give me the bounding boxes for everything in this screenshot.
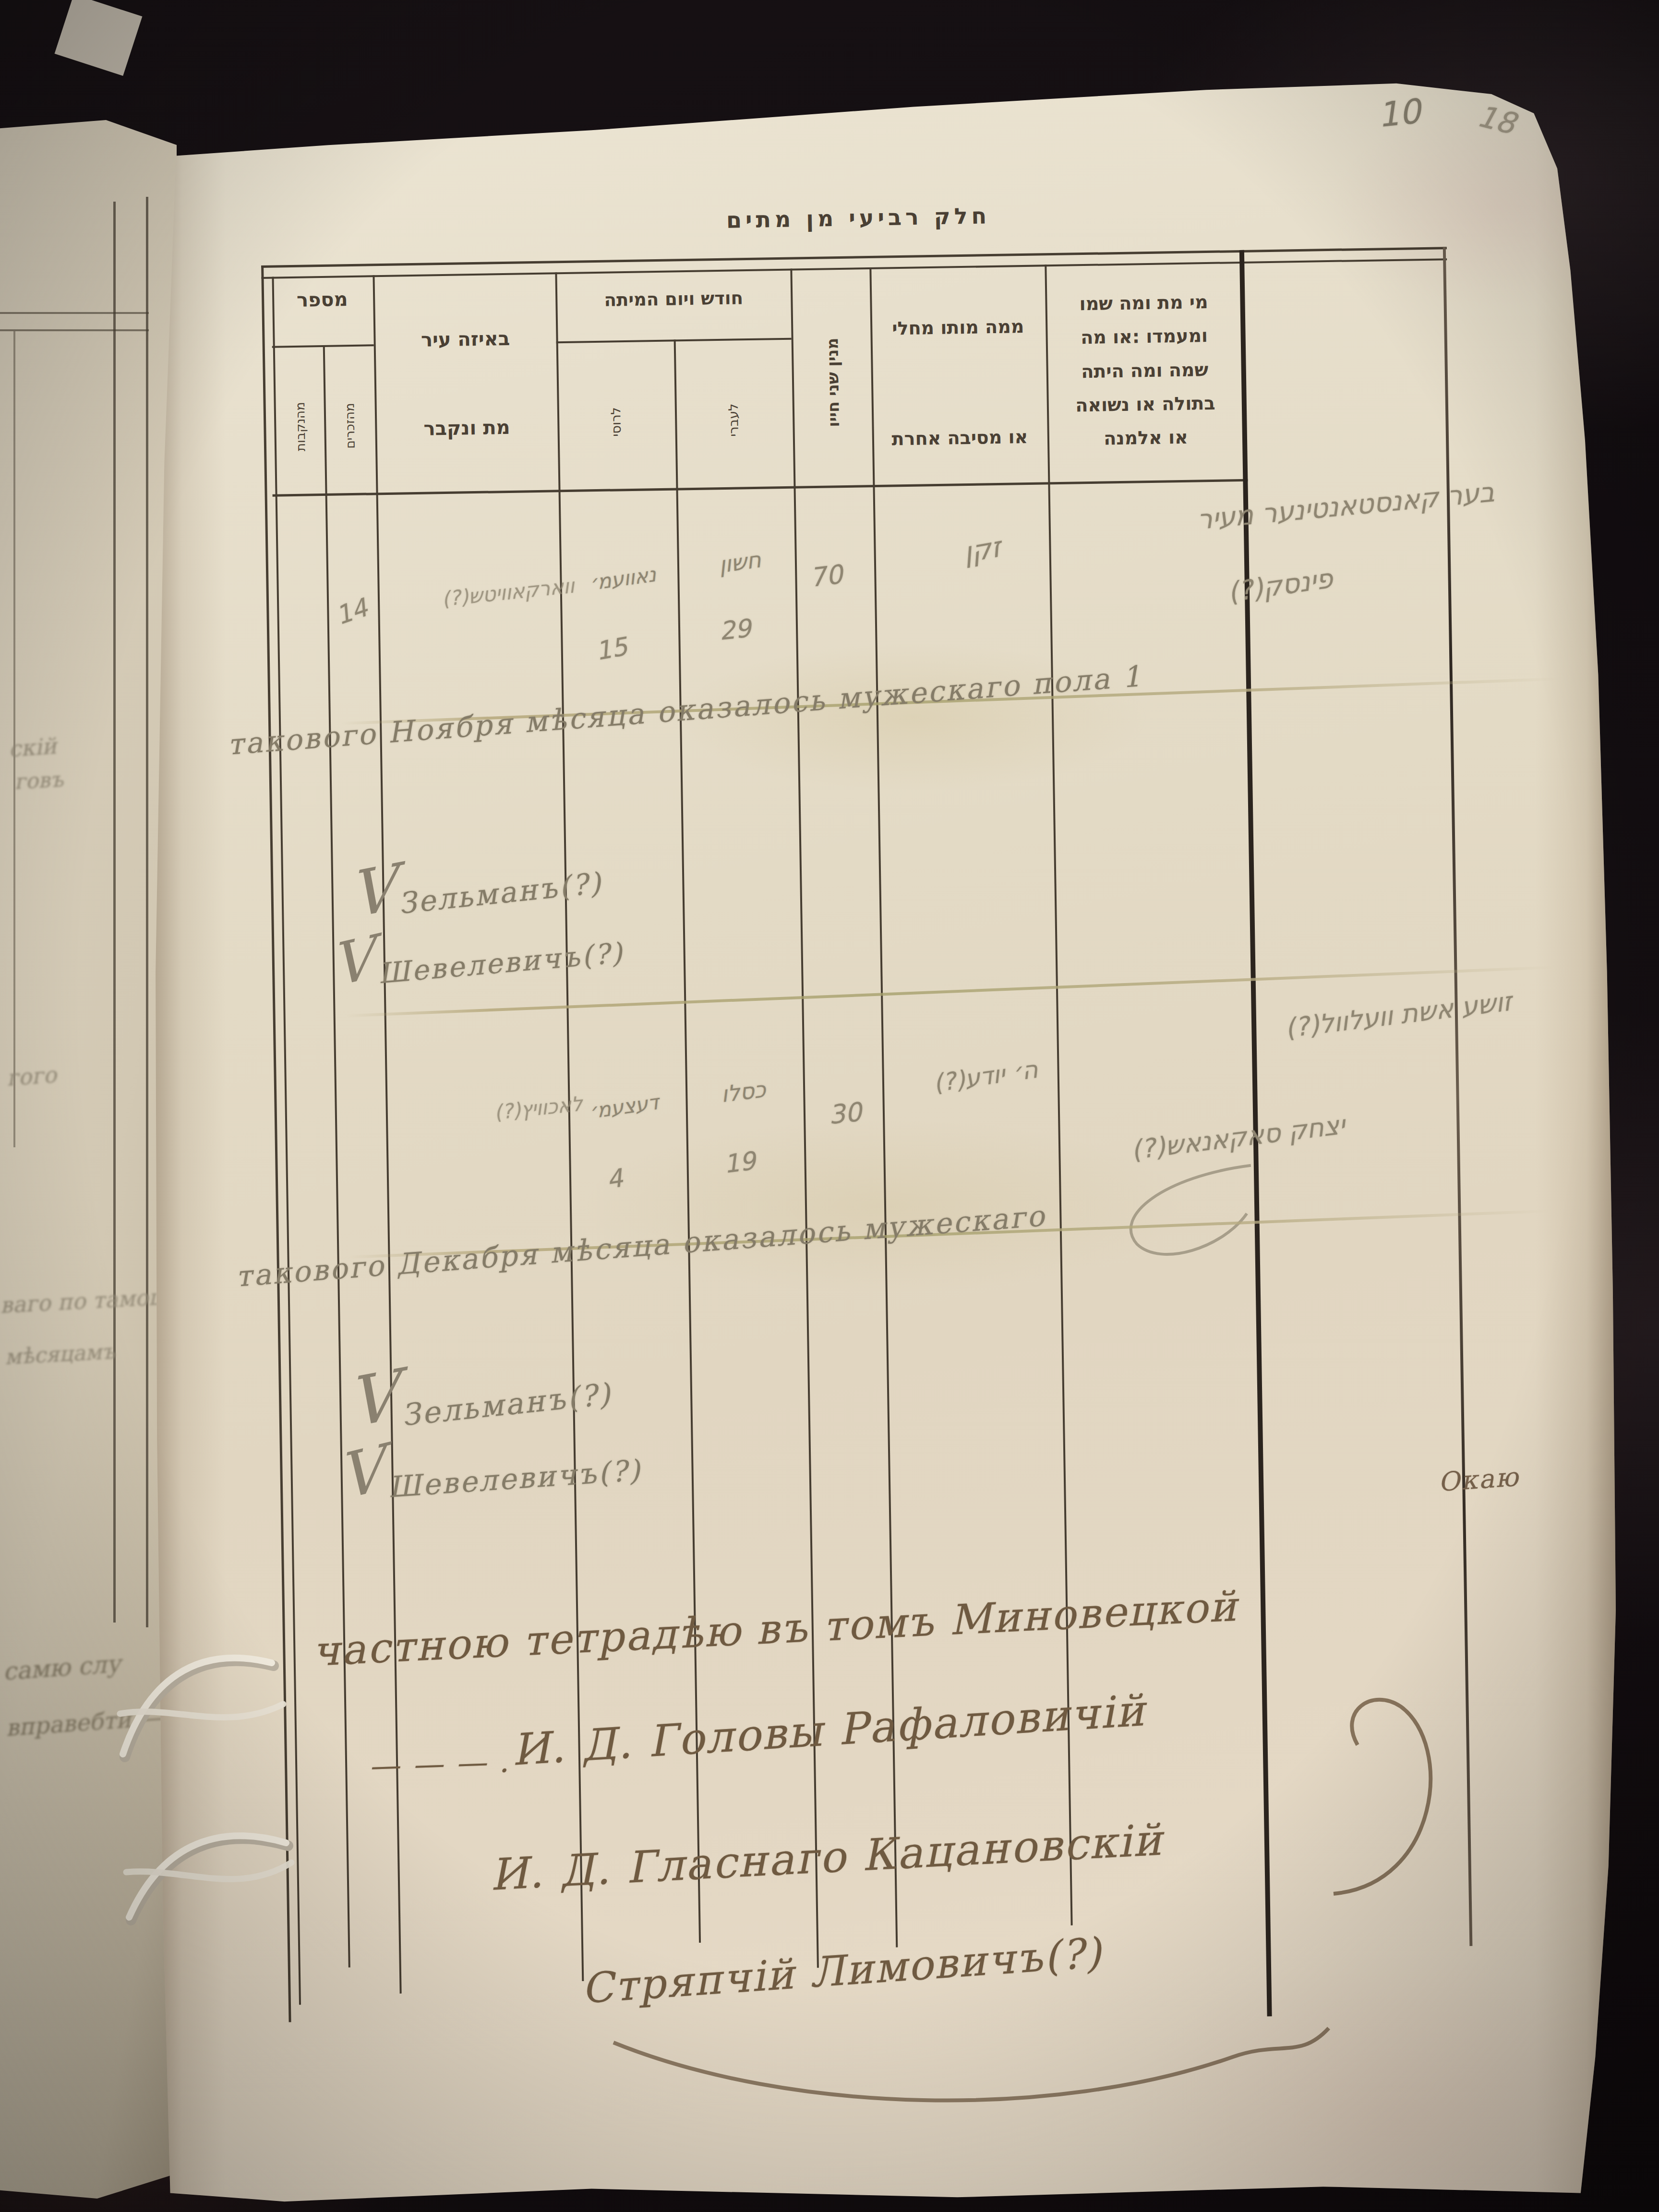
- check-flourish-icon: V: [347, 1355, 398, 1443]
- entry2-city: לאכוויץ(?): [380, 1092, 583, 1136]
- header-number-sub-females: מהנקבות: [275, 357, 325, 497]
- col-rule-age-cause: [869, 267, 898, 1948]
- check-flourish-icon: V: [349, 851, 397, 933]
- signature-underline-flourish: [599, 2014, 1348, 2119]
- entry2-date-hebrew-month: כסלו: [694, 1073, 793, 1111]
- table-frame-top-outer: [261, 247, 1447, 268]
- header-bottom-rule: [273, 479, 1248, 497]
- table-frame-top-inner: [261, 258, 1447, 279]
- paper-scrap: [55, 0, 143, 76]
- check-flourish-icon: V: [329, 924, 375, 1000]
- entry1-name-line1: בער קאנסטאנטינער מעיר: [1034, 476, 1496, 551]
- entry1-city: ווארקאוויטש(?): [382, 574, 575, 617]
- header-city-line2: מת ונקבר: [378, 415, 556, 440]
- header-city-line1: באיזה עיר: [376, 326, 554, 351]
- header-name-block: מי מת ומה שמו ומעמדו :או מה שמה ומה היתה…: [1050, 285, 1239, 457]
- facing-text-fragment: говъ: [14, 767, 64, 793]
- entry2-name-line1: זושע אשת וועלוול(?): [1100, 986, 1513, 1066]
- photo-of-register-page: скій говъ гого ваго по тамошняго мѣсяцам…: [0, 0, 1659, 2212]
- facing-rule-vertical-outer: [113, 202, 116, 1623]
- attestation-dashes: — — — .: [368, 1743, 511, 1784]
- facing-rule-vertical-inner: [146, 197, 148, 1627]
- header-number-sub-males: מהזכרים: [325, 356, 375, 496]
- col-rule-cause-name: [1045, 264, 1072, 1925]
- entry1-name-line2: פינסק(?): [1226, 563, 1334, 608]
- entry2-date-russian-day: 4: [605, 1163, 625, 1194]
- summary-november: такового Ноября мѣсяца оказалось мужеска…: [226, 659, 1143, 761]
- entry1-date-russian-month: נאוועמ׳: [576, 561, 669, 597]
- col-rule-number-split: [323, 345, 350, 1968]
- entry1-number-male: 14: [332, 593, 372, 630]
- entry1-date-hebrew-day: 29: [718, 613, 752, 645]
- header-date: חודש ויום המיתה: [558, 287, 789, 312]
- header-cause-line2: או מסיבה אחרת: [875, 426, 1046, 450]
- binding-thread-icon: [115, 1627, 288, 1771]
- header-age: מנין שני חייו: [793, 281, 873, 483]
- entry2-age: 30: [827, 1097, 863, 1130]
- verification2-line1: Зельманъ(?): [400, 1376, 613, 1433]
- facing-text-fragment: гого: [6, 1061, 57, 1091]
- header-name-line3: שמה ומה היתה: [1051, 352, 1238, 389]
- facing-rule-horizontal-2: [0, 329, 149, 331]
- verification2-line2: Шевелевичъ(?): [387, 1453, 643, 1504]
- entry1-cause: זקן: [923, 524, 1042, 576]
- check-flourish-icon: V: [336, 1432, 386, 1515]
- header-date-sub-hebrew: לעברי: [709, 357, 758, 483]
- catchword: Окаю: [1437, 1462, 1520, 1497]
- register-page: 10 18 חלק רביעי מן מתים: [153, 79, 1616, 2206]
- entry2-cause: ה׳ יודע(?): [912, 1053, 1058, 1100]
- header-cause-line1: ממה מותו מחלי: [873, 315, 1044, 339]
- header-name-line4: בתולה או נשואה: [1051, 386, 1239, 422]
- facing-text-fragment: скій: [8, 733, 57, 762]
- entry1-date-russian-day: 15: [593, 632, 630, 665]
- header-name-line1: מי מת ומה שמו: [1050, 285, 1238, 321]
- name-flourish: [1107, 1156, 1262, 1264]
- entry1-age: 70: [808, 559, 844, 593]
- header-number: מספר: [271, 288, 373, 311]
- header-date-sub-russian: לרוסי: [591, 359, 641, 485]
- verification1-line2: Шевелевичъ(?): [377, 937, 625, 990]
- summary-december: такового Декабря мѣсяца оказалось мужеск…: [235, 1199, 1047, 1293]
- entry2-date-hebrew-day: 19: [722, 1146, 757, 1179]
- facing-rule-horizontal-1: [0, 312, 149, 314]
- binding-thread-icon: [122, 1800, 295, 1935]
- entry2-date-russian-month: דעצעמ׳: [574, 1089, 673, 1125]
- signature-flourish: [1319, 1678, 1463, 1903]
- header-name-line5: או אלמנה: [1052, 420, 1239, 456]
- entry1-date-hebrew-month: חשון: [693, 543, 787, 582]
- verification1-line1: Зельманъ(?): [397, 866, 604, 921]
- header-name-line2: ומעמדו :או מה: [1050, 318, 1238, 355]
- facing-text-fragment: мѣсяцамъ: [4, 1339, 116, 1369]
- facing-text-fragment: самю слу: [2, 1650, 121, 1686]
